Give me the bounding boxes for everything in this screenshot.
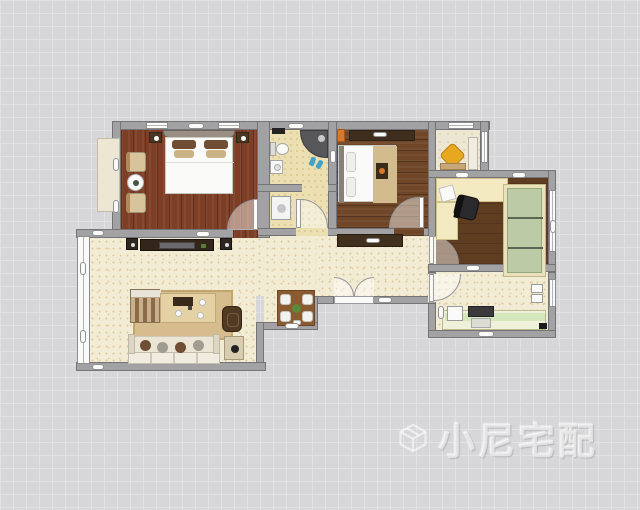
kitchen-sink[interactable] xyxy=(531,284,544,304)
oven xyxy=(471,318,491,328)
dimension-marker xyxy=(285,323,299,329)
master-window-2[interactable] xyxy=(218,122,240,129)
entry-door-sill xyxy=(334,296,374,304)
lamp xyxy=(154,136,159,141)
laundry-door[interactable] xyxy=(296,199,301,228)
speaker-dot xyxy=(131,243,135,247)
laundry-door-opening xyxy=(296,228,328,236)
watermark: 小尼宅配 xyxy=(398,408,598,468)
bath-mat xyxy=(272,128,285,134)
corner-mark xyxy=(539,323,547,329)
dimension-marker xyxy=(466,265,480,271)
kitchen-window[interactable] xyxy=(549,279,556,307)
master-armchair-1[interactable] xyxy=(126,152,146,172)
dimension-marker xyxy=(80,262,86,275)
side-table-inner xyxy=(227,313,239,327)
shelf-line xyxy=(508,217,543,219)
cube-logo-icon xyxy=(398,415,428,461)
pillow xyxy=(172,140,196,149)
basin xyxy=(274,164,281,171)
striped-armchair[interactable] xyxy=(130,289,160,323)
pillow xyxy=(346,152,356,172)
dimension-marker xyxy=(113,200,119,213)
study-door[interactable] xyxy=(429,236,434,264)
speaker-left[interactable] xyxy=(126,238,138,250)
dimension-marker xyxy=(330,150,336,163)
wall-bath-left xyxy=(257,121,270,238)
master-bed[interactable] xyxy=(165,137,233,194)
sofa-arm xyxy=(213,334,220,354)
design-canvas: 小尼宅配 xyxy=(0,0,640,510)
shelf-line xyxy=(508,247,543,249)
decor-dot xyxy=(201,244,206,248)
vase xyxy=(133,180,139,186)
dimension-marker xyxy=(478,331,494,337)
subwoofer-cone xyxy=(231,345,239,353)
dimension-marker xyxy=(550,220,556,233)
coffee-table[interactable] xyxy=(160,293,216,323)
dimension-marker xyxy=(80,330,86,343)
cup xyxy=(188,306,192,310)
dining-chair[interactable] xyxy=(280,311,291,322)
dimension-marker xyxy=(366,238,380,243)
master-door-opening xyxy=(233,230,258,238)
bedroom2-door[interactable] xyxy=(419,197,424,228)
nightstand-left[interactable] xyxy=(149,132,162,143)
nook-shelf[interactable] xyxy=(468,137,478,170)
kitchen-door[interactable] xyxy=(429,274,434,302)
tv-cabinet[interactable] xyxy=(140,239,214,251)
wall-study-top xyxy=(428,170,556,178)
nightstand-right[interactable] xyxy=(236,132,249,143)
bath-door-opening xyxy=(302,184,328,192)
table-plant xyxy=(292,304,301,313)
pillow xyxy=(204,140,228,149)
side-table-dark[interactable] xyxy=(222,306,242,332)
armchair-back xyxy=(131,290,161,298)
plate xyxy=(199,299,206,306)
dimension-marker xyxy=(288,123,304,129)
watermark-text: 小尼宅配 xyxy=(438,411,598,465)
dimension-marker xyxy=(196,231,210,237)
bookcase-green[interactable] xyxy=(507,188,542,273)
sink-basin xyxy=(531,294,543,303)
dimension-marker xyxy=(92,364,104,370)
dining-chair[interactable] xyxy=(280,294,291,305)
dimension-marker xyxy=(438,306,444,319)
nook-window-top[interactable] xyxy=(448,122,474,129)
master-armchair-2[interactable] xyxy=(126,193,146,213)
tray xyxy=(173,297,193,306)
bed2-throw-art xyxy=(376,163,388,179)
nook-bench[interactable] xyxy=(440,163,466,170)
toilet-bowl xyxy=(276,143,289,155)
sofa[interactable] xyxy=(128,334,220,364)
speaker-dot xyxy=(225,243,229,247)
dimension-marker xyxy=(455,172,469,178)
pillow xyxy=(346,177,356,197)
dimension-marker xyxy=(373,132,387,137)
bath-vanity[interactable] xyxy=(270,160,283,174)
wall-bath-right xyxy=(328,121,337,236)
master-side-table[interactable] xyxy=(127,174,144,191)
shower-head xyxy=(318,135,325,142)
sofa-arm xyxy=(128,334,135,354)
subwoofer[interactable] xyxy=(224,336,244,360)
dimension-marker xyxy=(113,158,119,171)
pillow xyxy=(206,150,226,158)
dimension-marker xyxy=(92,230,104,236)
art-dot xyxy=(379,168,385,174)
speaker-right[interactable] xyxy=(220,238,232,250)
ac-unit[interactable] xyxy=(337,129,345,142)
living-bay-window[interactable] xyxy=(77,236,90,364)
plate xyxy=(175,310,182,317)
dimension-marker xyxy=(378,297,392,303)
dimension-marker xyxy=(512,172,526,178)
washer-drum xyxy=(277,204,286,213)
plate xyxy=(197,312,204,319)
toilet[interactable] xyxy=(270,142,290,156)
bed2-headboard xyxy=(339,146,344,203)
dining-chair[interactable] xyxy=(302,294,313,305)
sink-basin xyxy=(531,284,543,293)
master-window-1[interactable] xyxy=(146,122,168,129)
pillow xyxy=(193,340,204,351)
dining-chair[interactable] xyxy=(302,311,313,322)
bedroom2-bed[interactable] xyxy=(338,145,396,202)
lamp xyxy=(241,136,246,141)
nook-window-right[interactable] xyxy=(481,131,488,163)
dimension-marker xyxy=(188,123,204,129)
duvet-fold xyxy=(166,162,234,163)
tv-screen xyxy=(159,242,195,249)
sofa-back xyxy=(128,352,220,364)
dining-table[interactable] xyxy=(277,290,315,326)
washing-machine[interactable] xyxy=(271,196,291,220)
kitchen-appliance[interactable] xyxy=(447,306,463,321)
pillow xyxy=(174,150,194,158)
stove[interactable] xyxy=(468,306,494,317)
master-door[interactable] xyxy=(253,199,258,230)
pillow xyxy=(157,342,168,353)
pillow xyxy=(175,342,186,353)
pillow xyxy=(140,340,151,351)
